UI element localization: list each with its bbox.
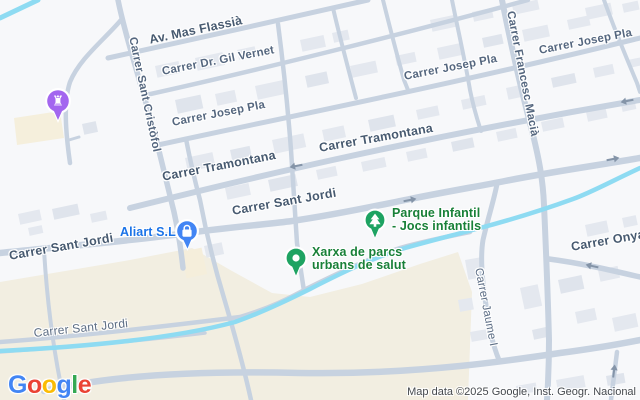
- logo-letter: e: [78, 371, 91, 400]
- poi-marker-parque-infantil[interactable]: [364, 209, 387, 241]
- stream-northwest: [0, 0, 38, 18]
- road-castle-curve: [66, 20, 121, 163]
- road-vertical-10: [333, 8, 356, 98]
- poi-dot-icon: [292, 254, 299, 261]
- poi-label-aliart[interactable]: Aliart S.L: [120, 226, 176, 239]
- road-onyar: [549, 259, 640, 277]
- road-dr-gil-vernet: [146, 0, 528, 95]
- logo-letter: o: [27, 371, 42, 400]
- map-attribution: Map data ©2025 Google, Inst. Geogr. Naci…: [407, 386, 636, 398]
- logo-letter: o: [42, 371, 57, 400]
- road-av-mas-flassia: [108, 0, 368, 58]
- poi-marker-xarxa[interactable]: [285, 247, 308, 279]
- logo-letter: g: [57, 371, 72, 400]
- map-canvas[interactable]: ♜: [0, 0, 640, 400]
- poi-label-line2: urbans de salut: [312, 259, 406, 272]
- castle-icon: ♜: [52, 94, 64, 110]
- logo-letter: G: [8, 371, 27, 400]
- road-castle-stub: [69, 137, 79, 140]
- google-logo[interactable]: Google: [8, 371, 91, 400]
- poi-label-line2: - Jocs infantils: [392, 220, 481, 233]
- poi-label-parque-infantil[interactable]: Parque Infantil - Jocs infantils: [392, 207, 481, 233]
- poi-label-xarxa[interactable]: Xarxa de parcs urbans de salut: [312, 246, 406, 272]
